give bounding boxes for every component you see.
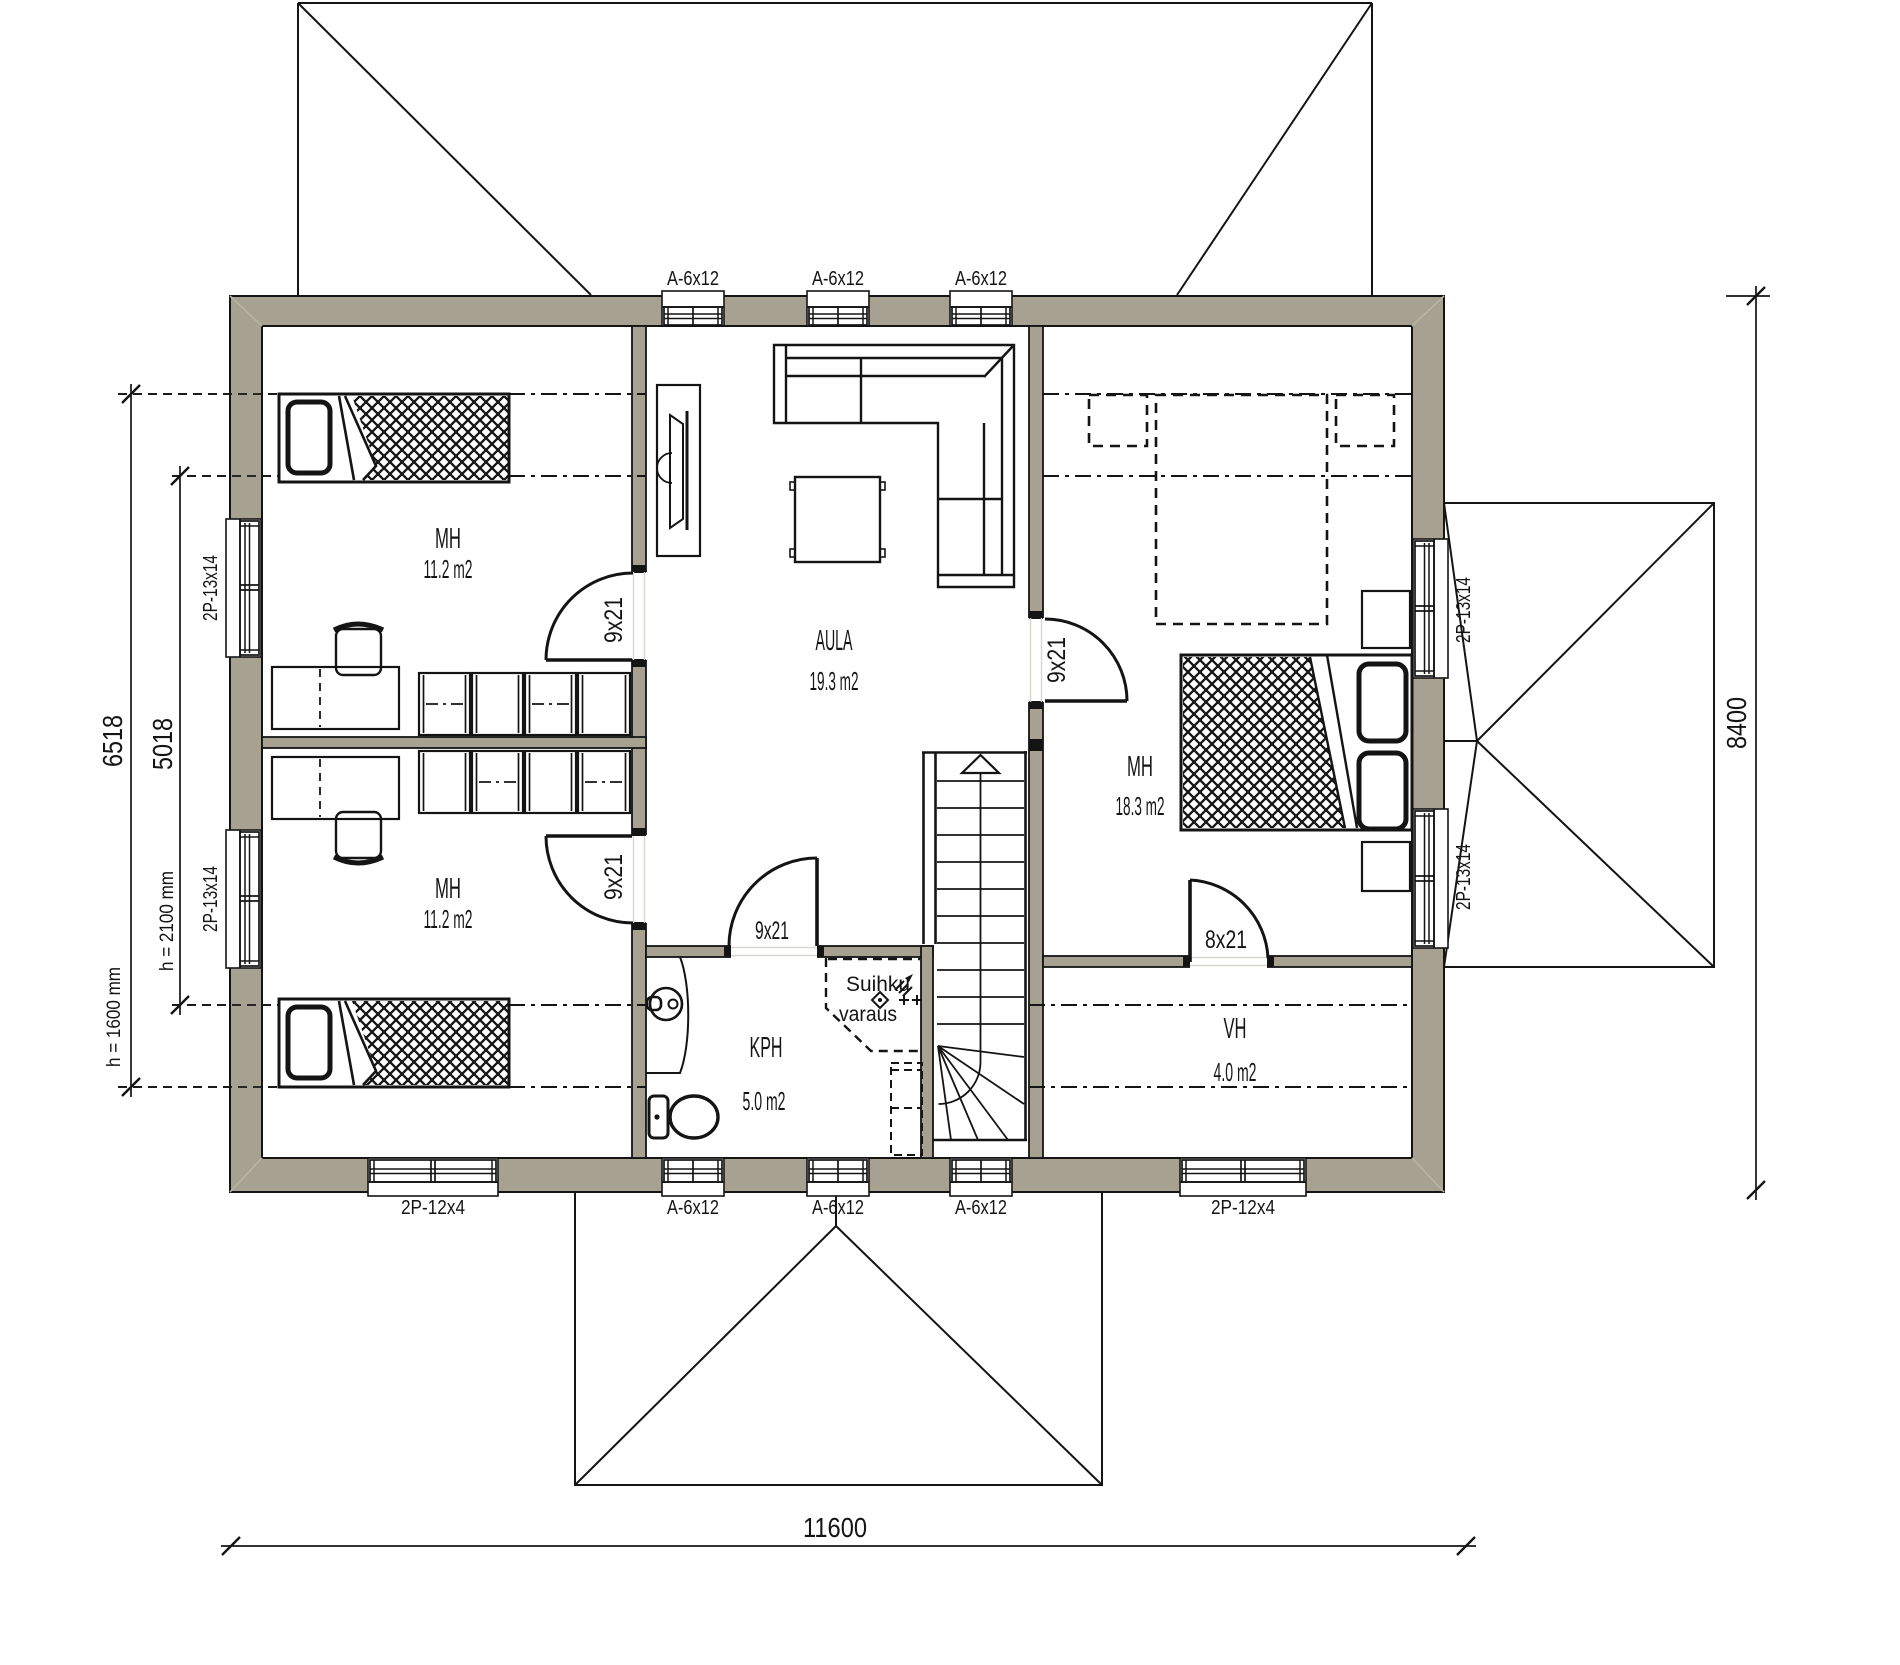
svg-text:4.0 m2: 4.0 m2 — [1214, 1057, 1257, 1087]
svg-text:18.3 m2: 18.3 m2 — [1116, 791, 1165, 821]
svg-text:9x21: 9x21 — [1043, 637, 1071, 683]
svg-text:MH: MH — [435, 873, 461, 905]
svg-text:VH: VH — [1224, 1013, 1247, 1045]
svg-text:9x21: 9x21 — [600, 854, 628, 900]
svg-text:8x21: 8x21 — [1205, 926, 1247, 954]
svg-text:AULA: AULA — [816, 625, 853, 657]
svg-text:2P-13x14: 2P-13x14 — [200, 866, 222, 932]
svg-text:9x21: 9x21 — [755, 917, 789, 945]
svg-text:9x21: 9x21 — [600, 597, 628, 643]
svg-text:2P-12x4: 2P-12x4 — [1211, 1197, 1275, 1219]
svg-text:A-6x12: A-6x12 — [955, 1197, 1007, 1219]
svg-text:KPH: KPH — [750, 1032, 783, 1064]
svg-text:A-6x12: A-6x12 — [812, 1197, 864, 1219]
svg-text:11.2 m2: 11.2 m2 — [424, 554, 473, 584]
svg-text:11600: 11600 — [803, 1512, 867, 1543]
svg-text:A-6x12: A-6x12 — [955, 268, 1007, 290]
svg-text:2P-13x14: 2P-13x14 — [1453, 577, 1475, 643]
svg-text:Suihku: Suihku — [846, 973, 910, 996]
svg-text:19.3 m2: 19.3 m2 — [810, 666, 859, 696]
svg-text:h = 2100 mm: h = 2100 mm — [157, 871, 178, 971]
svg-text:A-6x12: A-6x12 — [812, 268, 864, 290]
svg-text:varaus: varaus — [839, 1003, 897, 1026]
svg-text:A-6x12: A-6x12 — [667, 1197, 719, 1219]
svg-text:11.2 m2: 11.2 m2 — [424, 904, 473, 934]
svg-text:MH: MH — [1127, 751, 1153, 783]
svg-text:5.0 m2: 5.0 m2 — [743, 1086, 786, 1116]
svg-text:6518: 6518 — [97, 715, 128, 767]
svg-text:h = 1600 mm: h = 1600 mm — [104, 967, 125, 1067]
svg-text:5018: 5018 — [147, 718, 178, 770]
svg-text:2P-13x14: 2P-13x14 — [1453, 844, 1475, 910]
svg-text:2P-13x14: 2P-13x14 — [200, 555, 222, 621]
svg-text:A-6x12: A-6x12 — [667, 268, 719, 290]
svg-text:8400: 8400 — [1721, 697, 1752, 749]
svg-text:MH: MH — [435, 523, 461, 555]
svg-text:2P-12x4: 2P-12x4 — [401, 1197, 465, 1219]
